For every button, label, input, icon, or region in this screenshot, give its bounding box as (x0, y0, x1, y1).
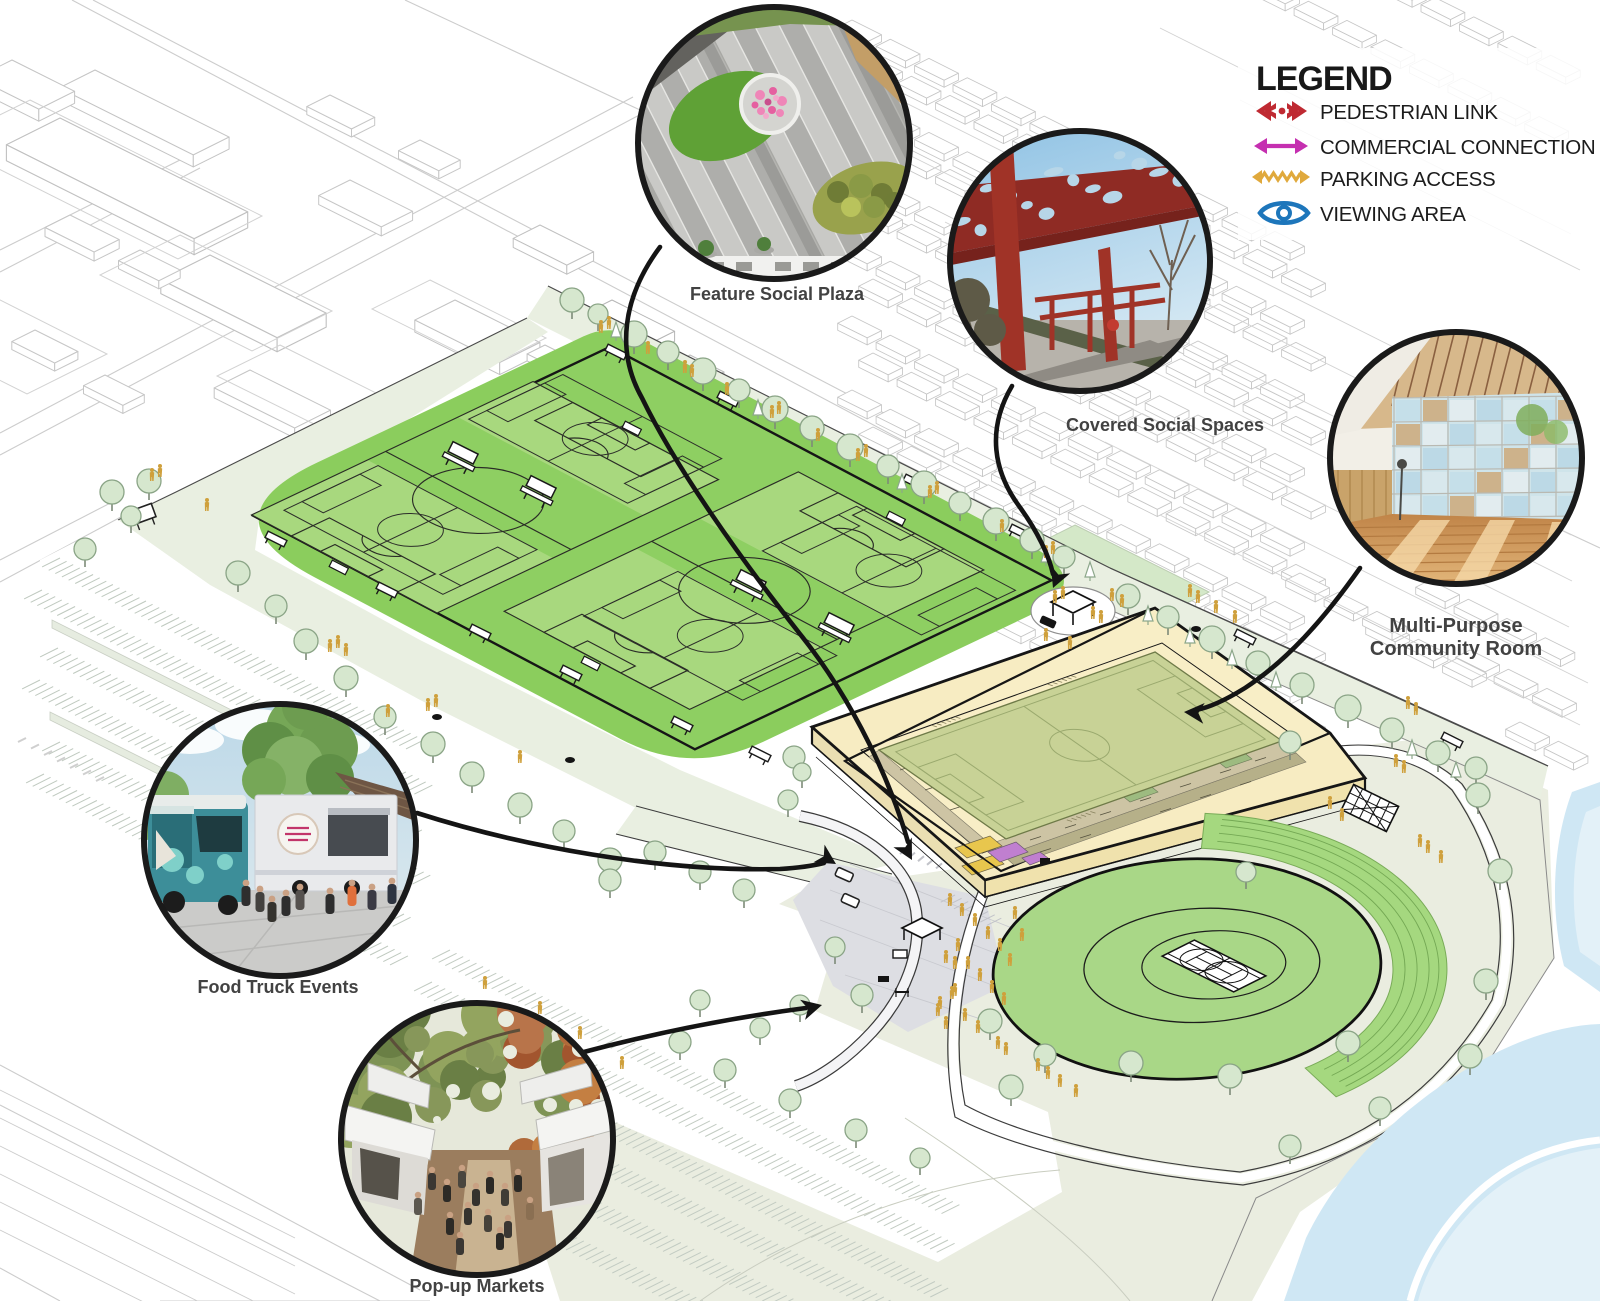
svg-text:COMMERCIAL CONNECTION: COMMERCIAL CONNECTION (1320, 136, 1595, 159)
svg-text:PEDESTRIAN LINK: PEDESTRIAN LINK (1320, 101, 1498, 124)
svg-text:Food Truck Events: Food Truck Events (197, 977, 358, 997)
svg-text:Pop-up Markets: Pop-up Markets (409, 1276, 544, 1296)
svg-text:Covered Social Spaces: Covered Social Spaces (1066, 415, 1264, 435)
svg-text:Multi-Purpose: Multi-Purpose (1389, 615, 1522, 637)
svg-text:VIEWING AREA: VIEWING AREA (1320, 203, 1466, 226)
svg-text:Feature Social Plaza: Feature Social Plaza (690, 284, 865, 304)
svg-text:PARKING ACCESS: PARKING ACCESS (1320, 168, 1495, 191)
svg-text:Community Room: Community Room (1370, 638, 1542, 660)
svg-text:LEGEND: LEGEND (1256, 60, 1392, 98)
